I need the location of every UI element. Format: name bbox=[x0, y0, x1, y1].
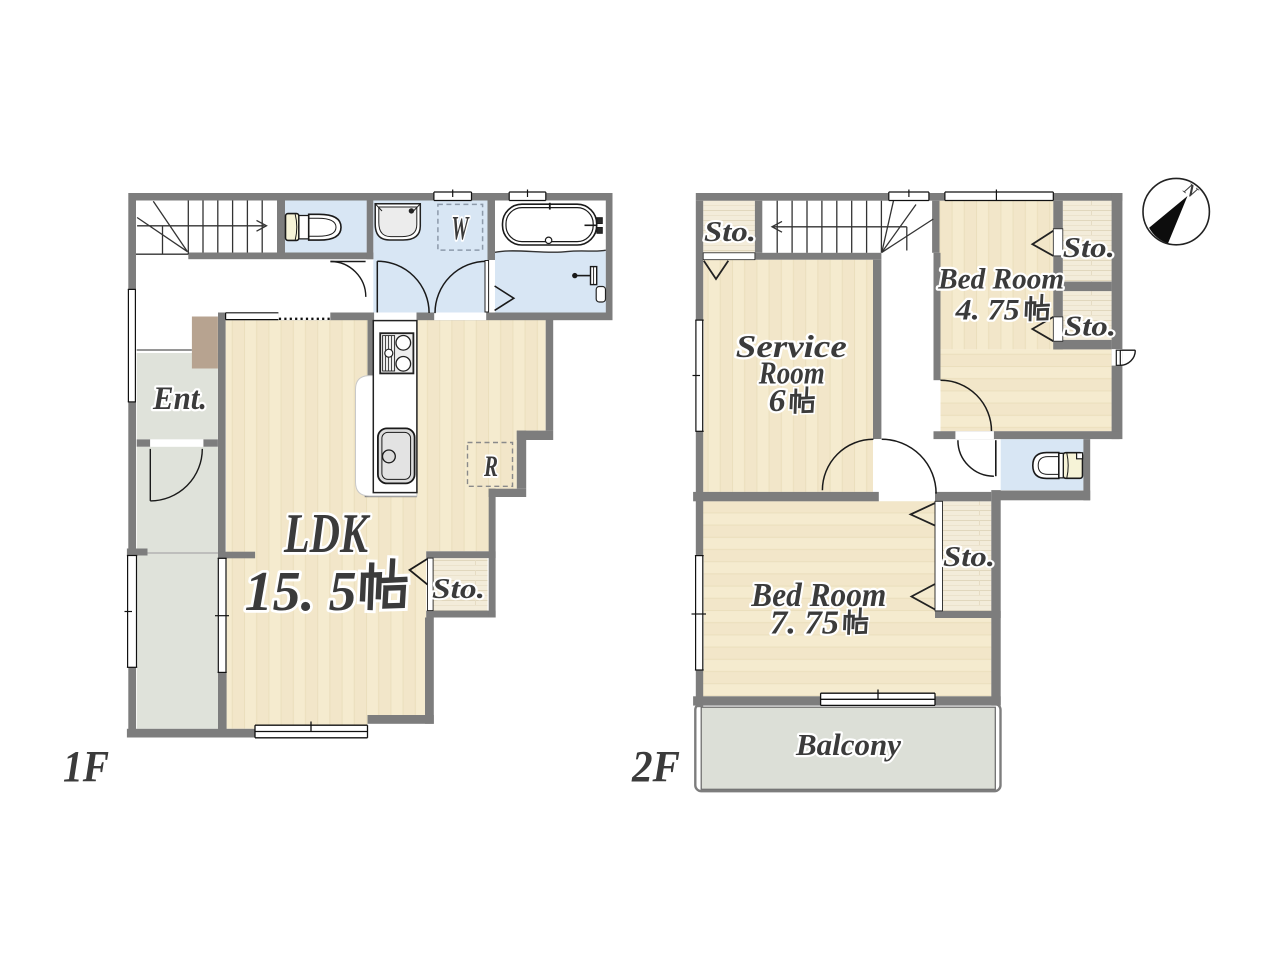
svg-text:Bed Room: Bed Room bbox=[937, 263, 1064, 296]
svg-text:4. 75: 4. 75 bbox=[955, 294, 1020, 327]
svg-text:2F: 2F bbox=[631, 742, 680, 791]
svg-text:6: 6 bbox=[769, 382, 786, 418]
svg-text:Sto.: Sto. bbox=[1063, 233, 1115, 264]
svg-text:Sto.: Sto. bbox=[704, 217, 756, 248]
svg-text:LDK: LDK bbox=[283, 503, 370, 565]
svg-text:Ent.: Ent. bbox=[152, 381, 207, 417]
svg-text:W: W bbox=[452, 210, 471, 247]
svg-text:Sto.: Sto. bbox=[432, 573, 485, 605]
svg-text:1F: 1F bbox=[63, 742, 109, 791]
svg-text:15. 5: 15. 5 bbox=[245, 561, 357, 623]
svg-text:Sto.: Sto. bbox=[1064, 312, 1116, 343]
svg-text:Balcony: Balcony bbox=[795, 727, 901, 762]
svg-text:Sto.: Sto. bbox=[943, 542, 995, 573]
svg-text:R: R bbox=[483, 450, 498, 483]
svg-text:7. 75: 7. 75 bbox=[770, 605, 839, 642]
